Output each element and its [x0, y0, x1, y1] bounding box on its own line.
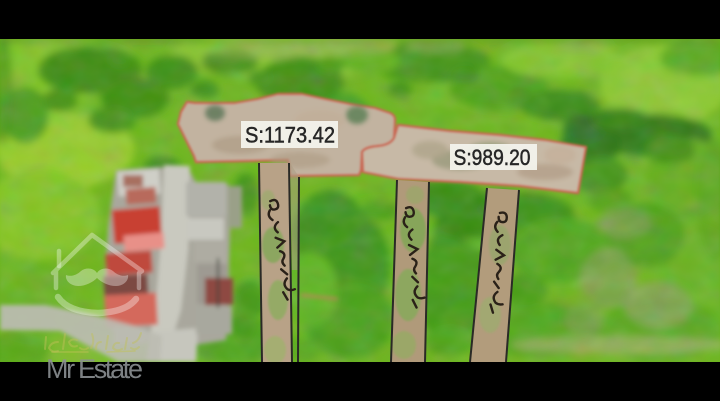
svg-text:Mr Estate: Mr Estate: [46, 354, 143, 384]
svg-text:S:1173.42: S:1173.42: [245, 123, 335, 148]
svg-text:S:989.20: S:989.20: [454, 145, 531, 170]
